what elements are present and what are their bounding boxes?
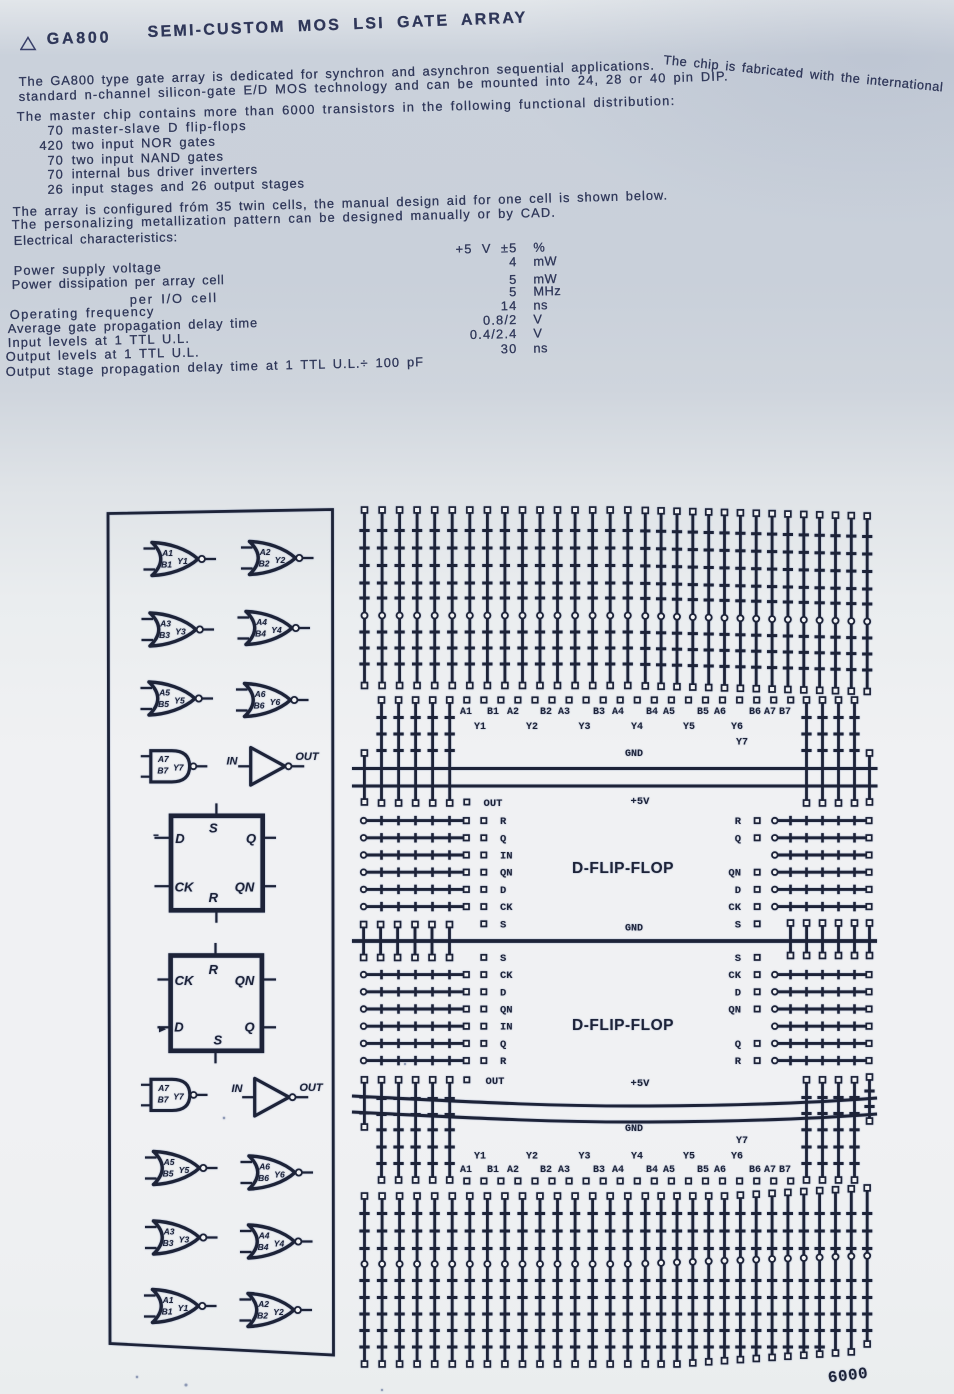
svg-text:B5: B5	[697, 1165, 709, 1176]
svg-text:B2: B2	[540, 707, 552, 718]
svg-text:Q: Q	[244, 1020, 254, 1035]
svg-text:R: R	[209, 962, 219, 977]
svg-text:A6: A6	[258, 1162, 270, 1172]
svg-text:GND: GND	[625, 924, 643, 935]
svg-text:A1: A1	[162, 1295, 174, 1305]
svg-text:B4: B4	[646, 707, 658, 718]
svg-text:Y4: Y4	[631, 722, 643, 733]
svg-text:A7: A7	[764, 1165, 776, 1176]
svg-text:R: R	[209, 890, 219, 905]
svg-text:Y2: Y2	[526, 1152, 538, 1163]
svg-text:A6: A6	[714, 707, 726, 718]
svg-text:A1: A1	[460, 1165, 472, 1176]
svg-text:A2: A2	[259, 547, 271, 557]
svg-text:Y1: Y1	[177, 556, 188, 566]
svg-text:Y5: Y5	[683, 722, 695, 733]
svg-text:S: S	[735, 953, 741, 965]
svg-text:CK: CK	[175, 880, 195, 895]
svg-text:A5: A5	[158, 688, 170, 698]
svg-text:D: D	[174, 1020, 184, 1035]
svg-text:A4: A4	[612, 707, 624, 718]
svg-text:QN: QN	[728, 868, 741, 880]
svg-text:A3: A3	[163, 1227, 175, 1237]
svg-text:B5: B5	[697, 707, 709, 718]
svg-text:A2: A2	[507, 1165, 519, 1176]
svg-text:Y2: Y2	[273, 1307, 284, 1317]
svg-text:Y4: Y4	[631, 1152, 643, 1163]
svg-text:Y5: Y5	[179, 1165, 190, 1175]
svg-text:B3: B3	[593, 707, 605, 718]
svg-text:S: S	[213, 1033, 222, 1048]
svg-text:B3: B3	[593, 1165, 605, 1176]
svg-text:IN: IN	[232, 1083, 244, 1095]
svg-text:CK: CK	[728, 902, 741, 914]
svg-text:Y3: Y3	[179, 1235, 190, 1245]
svg-text:B7: B7	[779, 707, 791, 718]
svg-text:B1: B1	[487, 707, 499, 718]
svg-text:Y5: Y5	[683, 1152, 695, 1163]
svg-text:B1: B1	[162, 1307, 173, 1317]
svg-text:A2: A2	[257, 1299, 269, 1309]
svg-text:B2: B2	[259, 559, 270, 569]
svg-text:GND: GND	[625, 1124, 643, 1135]
svg-text:Y3: Y3	[578, 1152, 590, 1163]
svg-text:CK: CK	[728, 970, 741, 982]
svg-text:B1: B1	[161, 560, 172, 570]
svg-text:R: R	[500, 1056, 507, 1068]
svg-text:QN: QN	[728, 1005, 741, 1017]
svg-text:CK: CK	[500, 902, 513, 914]
svg-text:B2: B2	[257, 1311, 268, 1321]
svg-text:B3: B3	[159, 630, 170, 640]
svg-text:B1: B1	[487, 1165, 499, 1176]
svg-text:A1: A1	[161, 548, 173, 558]
svg-text:B7: B7	[158, 1094, 170, 1104]
svg-text:Y2: Y2	[526, 722, 538, 733]
svg-text:B4: B4	[258, 1242, 269, 1252]
svg-text:D: D	[735, 885, 741, 897]
svg-text:Y6: Y6	[270, 697, 281, 707]
svg-text:A5: A5	[663, 1165, 675, 1176]
svg-text:A3: A3	[558, 707, 570, 718]
svg-text:Y3: Y3	[175, 627, 186, 637]
svg-text:Y4: Y4	[274, 1239, 285, 1249]
svg-text:IN: IN	[227, 756, 239, 768]
svg-text:B7: B7	[779, 1165, 791, 1176]
svg-text:Y5: Y5	[174, 696, 185, 706]
svg-text:QN: QN	[500, 868, 513, 880]
svg-text:Y1: Y1	[474, 1152, 486, 1163]
svg-text:Y7: Y7	[173, 1091, 185, 1101]
svg-text:D-FLIP-FLOP: D-FLIP-FLOP	[572, 860, 674, 877]
svg-text:A3: A3	[558, 1165, 570, 1176]
svg-text:A2: A2	[507, 707, 519, 718]
svg-text:A5: A5	[163, 1157, 175, 1167]
svg-text:QN: QN	[235, 880, 255, 895]
svg-text:6000: 6000	[827, 1365, 869, 1388]
svg-text:B6: B6	[254, 701, 265, 711]
svg-text:B4: B4	[646, 1165, 658, 1176]
svg-text:D: D	[500, 987, 506, 999]
svg-text:A6: A6	[254, 689, 266, 699]
svg-text:B7: B7	[157, 766, 169, 776]
svg-text:A7: A7	[157, 754, 170, 764]
svg-text:A6: A6	[714, 1165, 726, 1176]
svg-text:Y2: Y2	[275, 555, 286, 565]
svg-text:Y7: Y7	[736, 738, 748, 749]
svg-text:IN: IN	[500, 1022, 513, 1034]
svg-text:D: D	[500, 885, 506, 897]
svg-text:QN: QN	[500, 1005, 513, 1017]
svg-text:B6: B6	[258, 1173, 269, 1183]
svg-text:Y6: Y6	[731, 722, 743, 733]
svg-text:B4: B4	[255, 629, 266, 639]
svg-text:A1: A1	[460, 707, 472, 718]
svg-text:Y1: Y1	[178, 1303, 189, 1313]
svg-text:OUT: OUT	[299, 1082, 324, 1094]
svg-text:Y1: Y1	[474, 722, 486, 733]
svg-text:A5: A5	[663, 707, 675, 718]
svg-text:IN: IN	[500, 851, 513, 863]
svg-text:R: R	[500, 816, 507, 828]
svg-text:R: R	[735, 816, 742, 828]
svg-text:S: S	[500, 953, 506, 965]
svg-text:Q: Q	[735, 1039, 741, 1051]
svg-text:QN: QN	[235, 973, 255, 988]
svg-text:Y3: Y3	[578, 722, 590, 733]
svg-text:Y7: Y7	[173, 763, 185, 773]
svg-text:A7: A7	[157, 1083, 170, 1093]
svg-text:Y7: Y7	[736, 1136, 748, 1147]
svg-text:CK: CK	[500, 970, 513, 982]
svg-text:S: S	[735, 919, 741, 931]
svg-text:B5: B5	[163, 1169, 174, 1179]
svg-text:Y6: Y6	[274, 1170, 285, 1180]
svg-text:OUT: OUT	[486, 1076, 505, 1088]
svg-text:Q: Q	[246, 831, 256, 846]
svg-text:A7: A7	[764, 707, 776, 718]
svg-text:B6: B6	[749, 1165, 761, 1176]
svg-text:R: R	[735, 1056, 742, 1068]
svg-text:A4: A4	[258, 1231, 270, 1241]
svg-text:S: S	[500, 919, 506, 931]
svg-text:A4: A4	[612, 1165, 624, 1176]
svg-text:OUT: OUT	[484, 798, 503, 810]
svg-text:Y4: Y4	[271, 625, 282, 635]
svg-text:D: D	[175, 831, 185, 846]
svg-text:+5V: +5V	[631, 796, 651, 808]
svg-text:Q: Q	[500, 1039, 506, 1051]
svg-text:B6: B6	[749, 707, 761, 718]
svg-text:B3: B3	[163, 1238, 174, 1248]
svg-text:A3: A3	[159, 619, 171, 629]
svg-text:D: D	[735, 987, 741, 999]
svg-text:+5V: +5V	[631, 1078, 651, 1090]
svg-text:GND: GND	[625, 749, 643, 760]
svg-text:A4: A4	[255, 617, 267, 627]
svg-text:B5: B5	[158, 699, 169, 709]
svg-text:CK: CK	[175, 973, 195, 988]
svg-text:D-FLIP-FLOP: D-FLIP-FLOP	[572, 1017, 674, 1034]
svg-text:S: S	[209, 821, 218, 836]
svg-text:Q: Q	[500, 833, 506, 845]
svg-text:Y6: Y6	[731, 1152, 743, 1163]
svg-text:Q: Q	[735, 833, 741, 845]
svg-text:OUT: OUT	[295, 751, 320, 763]
svg-text:B2: B2	[540, 1165, 552, 1176]
